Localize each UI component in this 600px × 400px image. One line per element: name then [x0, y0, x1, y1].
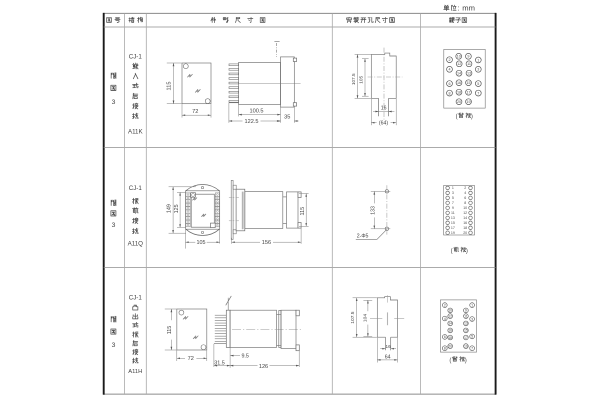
svg-text:19: 19 — [466, 100, 470, 104]
svg-text:1: 1 — [471, 303, 473, 307]
svg-text:16: 16 — [463, 221, 467, 225]
svg-text:A11Q: A11Q — [128, 241, 144, 248]
svg-text:7: 7 — [477, 92, 479, 96]
svg-text:3: 3 — [112, 342, 116, 349]
svg-text:6: 6 — [444, 335, 446, 339]
svg-text:14: 14 — [457, 72, 461, 76]
svg-text:3: 3 — [471, 317, 473, 321]
svg-text:20: 20 — [457, 100, 461, 104]
svg-text:9: 9 — [465, 309, 467, 313]
svg-text:115: 115 — [300, 207, 306, 216]
svg-text:18: 18 — [463, 226, 467, 230]
svg-text:13: 13 — [451, 216, 455, 220]
svg-text:mm: mm — [462, 4, 475, 13]
svg-text:A11H: A11H — [128, 369, 142, 375]
svg-text:16: 16 — [457, 81, 461, 85]
svg-text::: : — [458, 4, 460, 13]
svg-text:4: 4 — [444, 317, 446, 321]
svg-text:5: 5 — [452, 196, 454, 200]
svg-text:125: 125 — [174, 204, 180, 213]
svg-text:8: 8 — [448, 92, 450, 96]
svg-text:10: 10 — [448, 309, 452, 313]
svg-text:13: 13 — [464, 322, 468, 326]
svg-text:18: 18 — [457, 91, 461, 95]
svg-text:CJ-1: CJ-1 — [129, 185, 143, 192]
svg-text:(: ( — [451, 248, 453, 254]
svg-text:72: 72 — [188, 356, 194, 362]
svg-text:6: 6 — [464, 196, 466, 200]
svg-text:12: 12 — [463, 211, 467, 215]
svg-text:(64): (64) — [379, 121, 388, 127]
svg-text:3: 3 — [452, 191, 454, 195]
svg-text:105: 105 — [197, 240, 206, 246]
svg-text:15: 15 — [451, 221, 455, 225]
svg-text:14: 14 — [463, 216, 467, 220]
svg-text:10: 10 — [463, 206, 467, 210]
svg-text:19: 19 — [451, 231, 455, 235]
svg-text:19: 19 — [464, 344, 468, 348]
svg-text:17: 17 — [451, 226, 455, 230]
svg-text:133: 133 — [370, 206, 376, 215]
svg-text:): ) — [465, 358, 467, 364]
svg-text:6: 6 — [448, 82, 450, 86]
svg-text:9.5: 9.5 — [241, 354, 249, 360]
svg-text:5: 5 — [477, 82, 479, 86]
svg-text:115: 115 — [167, 326, 173, 335]
svg-text:17: 17 — [464, 336, 468, 340]
svg-text:4: 4 — [464, 191, 466, 195]
svg-text:1: 1 — [452, 186, 454, 190]
svg-text:11: 11 — [467, 62, 471, 66]
svg-text:156: 156 — [262, 240, 271, 246]
svg-text:15: 15 — [466, 81, 470, 85]
svg-text:14: 14 — [448, 322, 452, 326]
svg-text:CJ-1: CJ-1 — [129, 53, 143, 60]
svg-text:9: 9 — [452, 206, 454, 210]
svg-text:9: 9 — [467, 55, 469, 59]
svg-text:126: 126 — [259, 364, 268, 370]
svg-text:15: 15 — [464, 329, 468, 333]
svg-text:8: 8 — [444, 346, 446, 350]
svg-text:CJ-1: CJ-1 — [129, 294, 143, 301]
svg-text:2: 2 — [464, 186, 466, 190]
svg-text:104: 104 — [363, 314, 369, 322]
svg-text:): ) — [471, 114, 473, 120]
svg-text:16: 16 — [381, 106, 387, 112]
svg-text:2-Φ5: 2-Φ5 — [357, 234, 369, 240]
svg-text:13: 13 — [467, 72, 471, 76]
svg-text:20: 20 — [463, 231, 467, 235]
svg-text:10: 10 — [457, 55, 461, 59]
svg-text:(: ( — [456, 114, 458, 120]
svg-text:12: 12 — [448, 314, 452, 318]
svg-text:18: 18 — [448, 336, 452, 340]
svg-text:11: 11 — [464, 314, 468, 318]
svg-text:11: 11 — [451, 211, 455, 215]
svg-text:115: 115 — [166, 82, 172, 91]
svg-text:72: 72 — [192, 109, 198, 115]
svg-text:3: 3 — [477, 68, 479, 72]
svg-text:100.5: 100.5 — [250, 108, 264, 114]
svg-text:2: 2 — [448, 58, 450, 62]
svg-text:31.5: 31.5 — [214, 360, 225, 366]
svg-text:7: 7 — [471, 346, 473, 350]
svg-text:16: 16 — [386, 344, 392, 349]
svg-text:8: 8 — [464, 201, 466, 205]
svg-text:1: 1 — [477, 58, 479, 62]
svg-text:17: 17 — [466, 91, 470, 95]
svg-text:149: 149 — [167, 204, 173, 213]
svg-text:122.5: 122.5 — [245, 119, 259, 125]
svg-text:7: 7 — [452, 201, 454, 205]
svg-text:2: 2 — [444, 303, 446, 307]
svg-text:): ) — [466, 248, 468, 254]
svg-text:107.5: 107.5 — [351, 73, 356, 85]
svg-text:A11K: A11K — [128, 129, 144, 136]
svg-text:(: ( — [449, 358, 451, 364]
svg-text:5: 5 — [471, 335, 473, 339]
svg-text:4: 4 — [448, 68, 450, 72]
svg-text:3: 3 — [112, 222, 116, 229]
svg-text:35: 35 — [284, 114, 290, 120]
svg-text:3: 3 — [112, 99, 116, 106]
svg-text:107.5: 107.5 — [350, 311, 356, 324]
svg-text:20: 20 — [448, 344, 452, 348]
svg-text:12: 12 — [457, 62, 461, 66]
svg-text:64: 64 — [385, 354, 391, 360]
svg-text:16: 16 — [448, 329, 452, 333]
svg-text:105: 105 — [359, 76, 364, 84]
